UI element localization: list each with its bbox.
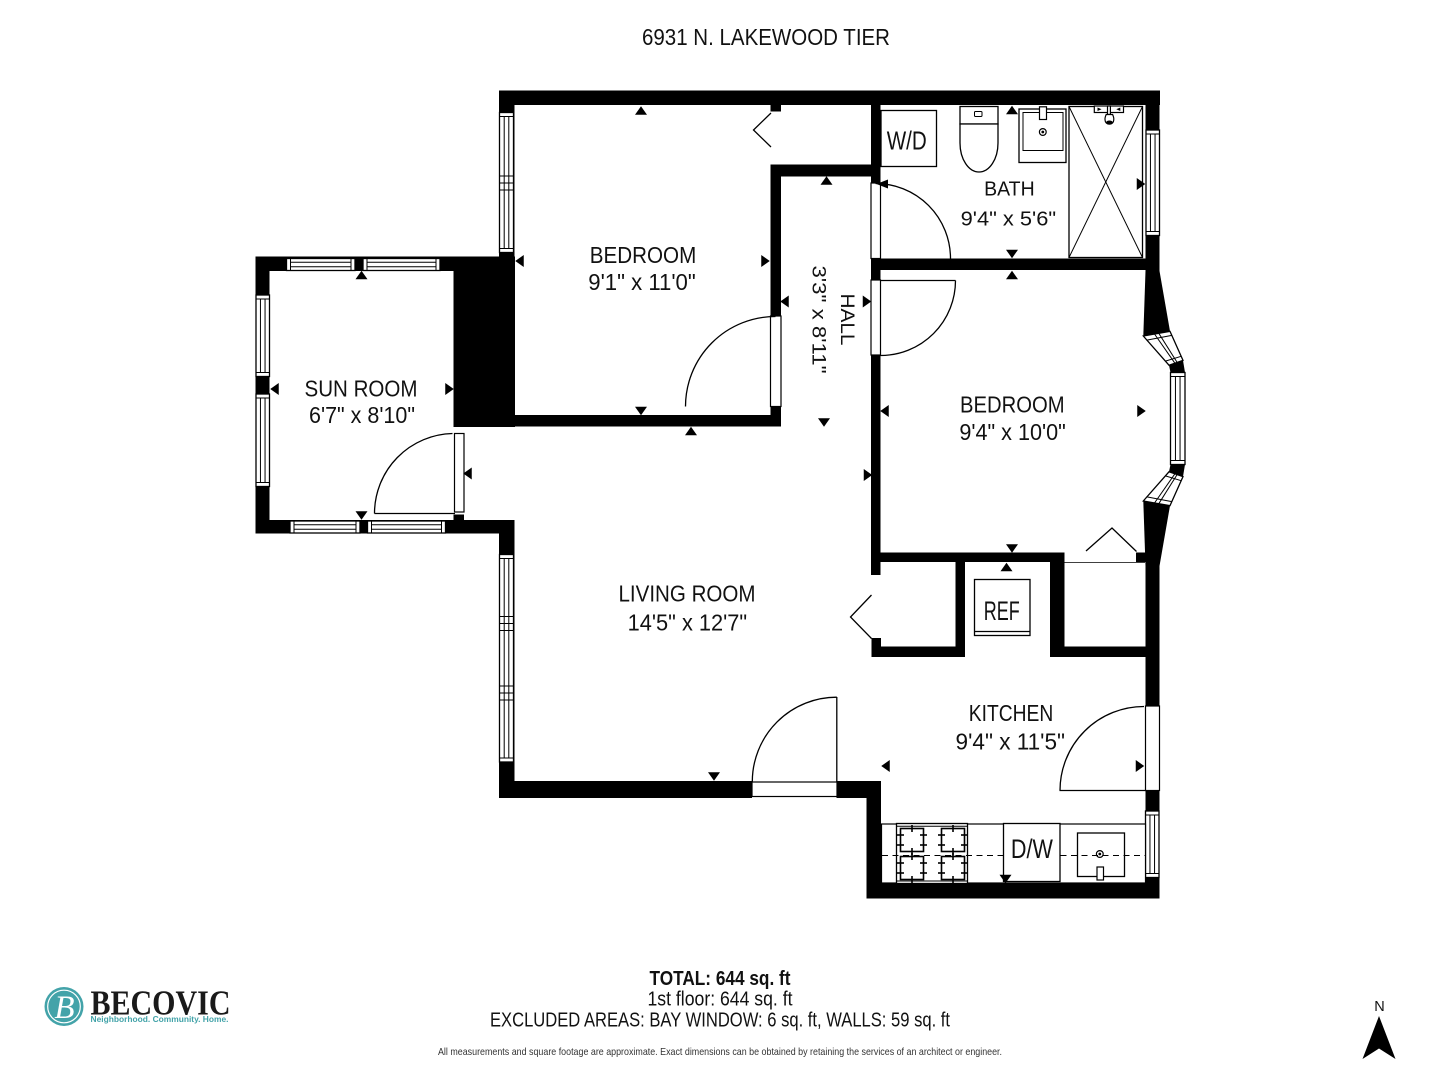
svg-text:9'4" x 5'6": 9'4" x 5'6" bbox=[961, 208, 1057, 231]
svg-text:14'5" x 12'7": 14'5" x 12'7" bbox=[628, 610, 748, 636]
svg-text:B: B bbox=[54, 990, 74, 1026]
svg-text:6'7" x 8'10": 6'7" x 8'10" bbox=[309, 402, 415, 428]
svg-text:9'4" x 11'5": 9'4" x 11'5" bbox=[956, 729, 1066, 755]
svg-text:6931 N. LAKEWOOD TIER: 6931 N. LAKEWOOD TIER bbox=[642, 24, 890, 50]
svg-text:1st floor: 644 sq. ft: 1st floor: 644 sq. ft bbox=[648, 988, 793, 1011]
svg-text:SUN ROOM: SUN ROOM bbox=[305, 376, 418, 402]
svg-text:D/W: D/W bbox=[1011, 834, 1053, 864]
svg-text:EXCLUDED AREAS: BAY WINDOW: 6: EXCLUDED AREAS: BAY WINDOW: 6 sq. ft, WA… bbox=[490, 1009, 950, 1032]
svg-text:BEDROOM: BEDROOM bbox=[590, 242, 697, 268]
svg-text:W/D: W/D bbox=[887, 126, 927, 156]
svg-text:KITCHEN: KITCHEN bbox=[969, 700, 1054, 726]
svg-text:BEDROOM: BEDROOM bbox=[960, 391, 1065, 417]
svg-text:9'1" x 11'0": 9'1" x 11'0" bbox=[588, 269, 696, 295]
svg-text:All measurements and square fo: All measurements and square footage are … bbox=[438, 1046, 1002, 1058]
svg-text:BATH: BATH bbox=[984, 178, 1035, 201]
svg-text:LIVING ROOM: LIVING ROOM bbox=[619, 581, 756, 607]
svg-text:REF: REF bbox=[984, 596, 1020, 626]
svg-text:N: N bbox=[1374, 999, 1384, 1015]
svg-text:3'3" x 8'11": 3'3" x 8'11" bbox=[808, 266, 829, 374]
svg-text:Neighborhood. Community. Home.: Neighborhood. Community. Home. bbox=[91, 1015, 229, 1024]
svg-text:HALL: HALL bbox=[836, 294, 857, 346]
svg-text:9'4" x 10'0": 9'4" x 10'0" bbox=[959, 419, 1066, 445]
